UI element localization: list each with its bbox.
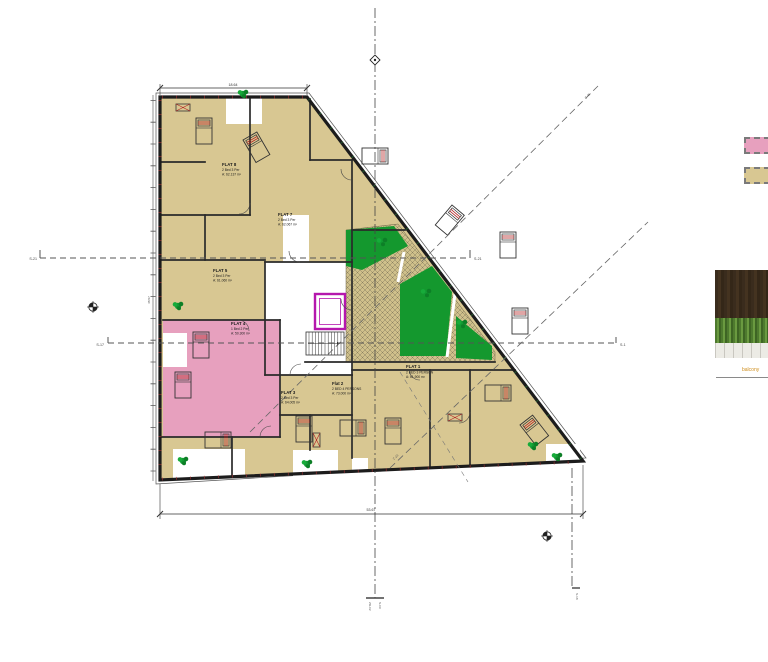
flat-5-area: A: 61.060 m² <box>213 279 233 283</box>
flat-2-area: A: 73.000 m² <box>332 392 352 396</box>
flat-2-name: Flat 2 <box>332 381 344 386</box>
photo-wall-area <box>715 270 768 318</box>
grid-label-zd02: ZD-02 <box>368 602 372 611</box>
section-label-s21-left: S-21 <box>29 257 37 261</box>
grid-label-z45: Z-45 <box>584 92 592 100</box>
legend-swatch-pink <box>744 137 768 154</box>
photo-caption: balcony <box>742 367 768 373</box>
flat-8-name: FLAT 8 <box>222 162 237 167</box>
flat-2-occupancy: 2 BED 4 PERSONS <box>332 387 362 391</box>
section-label-s1: S-1 <box>620 343 626 347</box>
dimension-bottom: 53.67 <box>367 508 376 512</box>
photo-hedge-area <box>715 318 768 343</box>
flat-1-area: A: 61.900 m² <box>406 375 426 379</box>
photo-caption-divider <box>716 377 768 378</box>
section-label-s17: S-17 <box>96 343 104 347</box>
survey-target-icon <box>87 301 99 313</box>
balcony-reference-photo <box>715 270 768 358</box>
flat-1-name: FLAT 1 <box>406 364 421 369</box>
flat-8-occupancy: 2 Bed 3 Per <box>222 168 240 172</box>
floor-plan-page: S-21 S-21 S-17 S-1 ZD-02 S-09 S-18 Z-45 … <box>0 0 768 662</box>
photo-railing-area <box>715 343 768 358</box>
floor-plan-drawing: S-21 S-21 S-17 S-1 ZD-02 S-09 S-18 Z-45 … <box>0 0 768 662</box>
flat-1-occupancy: 2 BED 3 PERSON <box>406 371 434 375</box>
grid-label-s18: S-18 <box>575 593 579 600</box>
flat-7-name: FLAT 7 <box>278 212 293 217</box>
flat-5-name: FLAT 5 <box>213 268 228 273</box>
flat-4-area: A: 50.300 m² <box>231 332 251 336</box>
flat-3-name: FLAT 3 <box>281 390 296 395</box>
flat-3-occupancy: 2 Bed 3 Per <box>281 396 299 400</box>
flat-4-occupancy: 1 Bed 2 Per <box>231 327 249 331</box>
section-label-s21-right: S-21 <box>474 257 482 261</box>
survey-target-icon <box>541 530 553 542</box>
dimension-top: 18.64 <box>229 83 238 87</box>
flat-7-occupancy: 2 Bed 3 Per <box>278 218 296 222</box>
grid-diamond-icon <box>370 55 380 65</box>
dimension-left: 48.57 <box>147 296 151 304</box>
grid-label-s09: S-09 <box>378 602 382 609</box>
flat-3-area: A: 64.005 m² <box>281 401 301 405</box>
flat-5-occupancy: 2 Bed 3 Per <box>213 274 231 278</box>
flat-4-name: FLAT 4 <box>231 321 246 326</box>
flat-8-area: A: 62.137 m² <box>222 173 242 177</box>
flat-7-area: A: 62.067 m² <box>278 223 298 227</box>
legend-swatch-tan <box>744 167 768 184</box>
staircase <box>306 332 344 355</box>
